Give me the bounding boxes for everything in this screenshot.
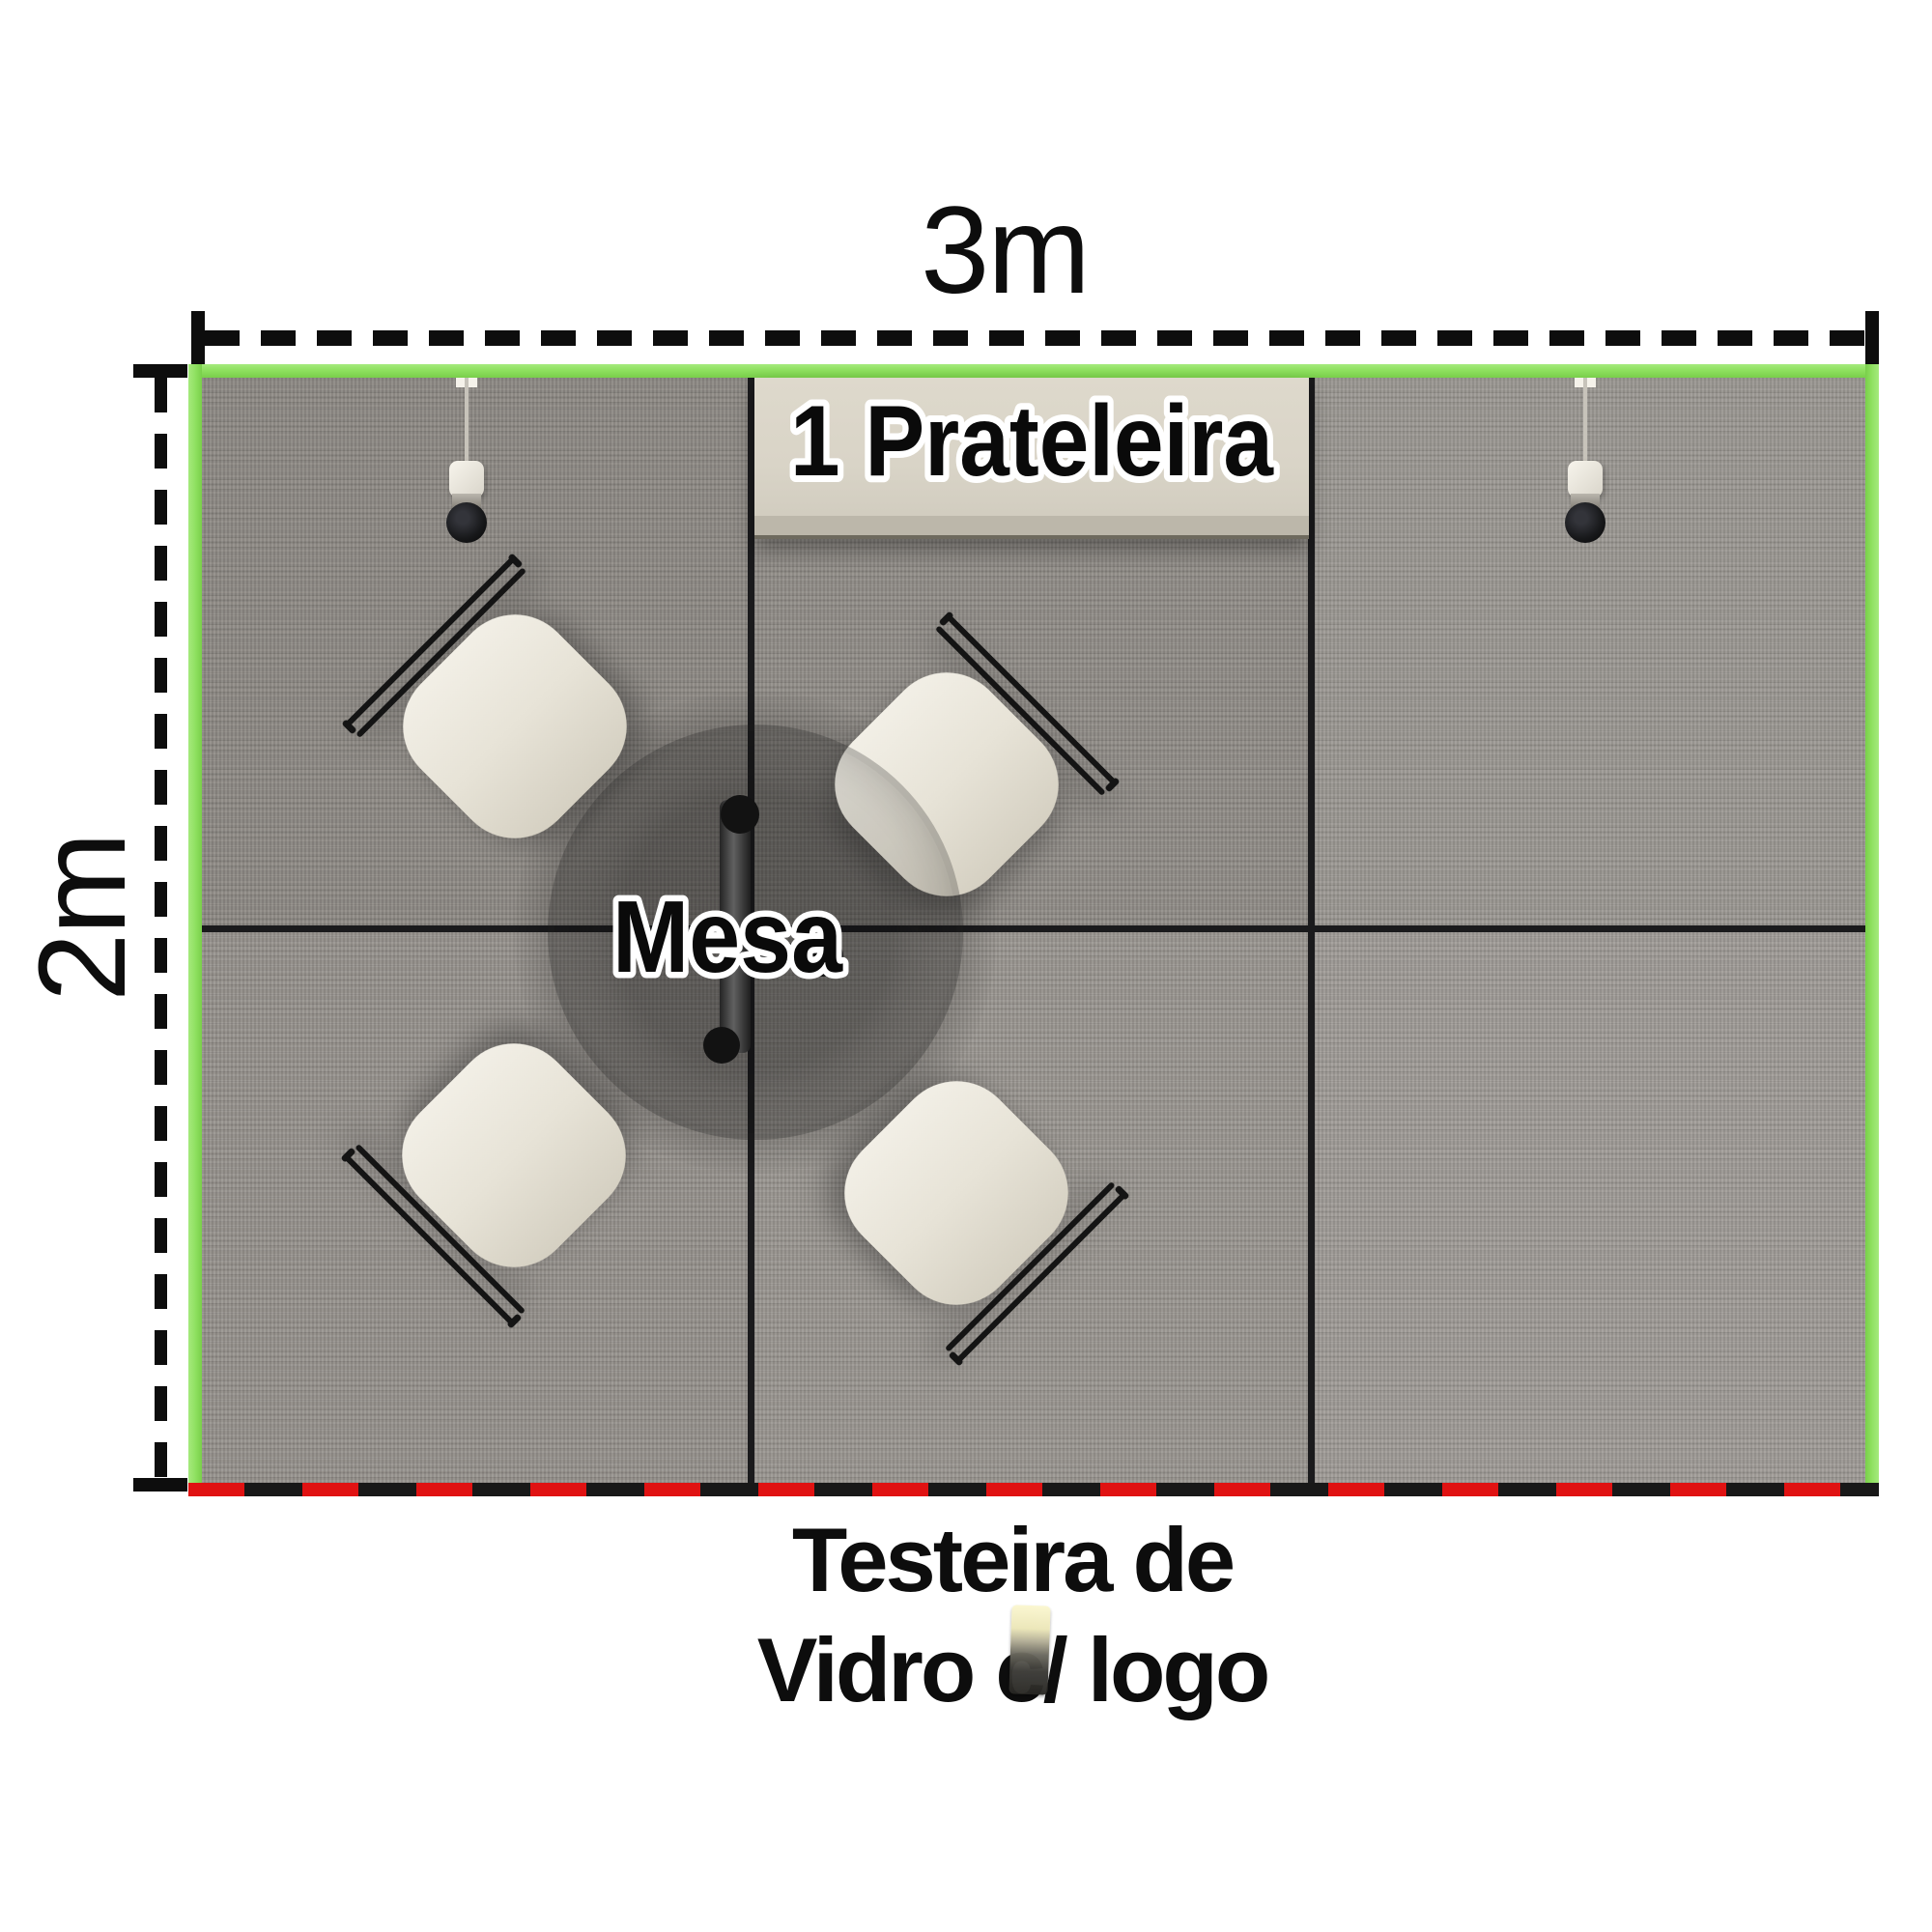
shelf [754,378,1309,539]
front-glass-header-line [188,1483,1879,1496]
height-dimension-tick-bottom [133,1478,187,1492]
table-glass-top [548,724,963,1140]
width-dimension-line [205,330,1865,346]
height-dimension-label: 2m [21,773,149,1063]
spotlight-icon [1556,378,1614,552]
height-dimension-tick-top [133,364,187,378]
carpet-seam [202,925,1865,932]
table-foot [803,936,843,977]
spotlight-cable [1583,378,1587,469]
spotlight-cable [465,378,469,469]
width-dimension-label: 3m [860,189,1150,313]
height-dimension-line [155,378,167,1478]
booth-outline [188,364,1879,1496]
width-dimension-tick-right [1865,311,1879,365]
table-foot [703,1027,740,1064]
table-pedestal [720,800,751,1053]
carpet-tile [1312,929,1865,1483]
lamp-icon [1009,1605,1050,1694]
spotlight-body [449,461,484,497]
width-dimension-tick-left [191,311,205,365]
booth-floor-plan: 3m 2m [0,0,1932,1932]
wall-left [188,364,202,1483]
spotlight-lens [446,502,487,543]
table-foot [721,795,759,834]
shelf-front-edge [754,516,1309,535]
front-banner-line1: Testeira de [288,1505,1737,1615]
spotlight-body [1568,461,1603,497]
spotlight-lens [1565,502,1605,543]
wall-right [1865,364,1879,1483]
spotlight-icon [438,378,496,552]
carpet-floor [202,378,1865,1483]
wall-top [188,364,1879,378]
